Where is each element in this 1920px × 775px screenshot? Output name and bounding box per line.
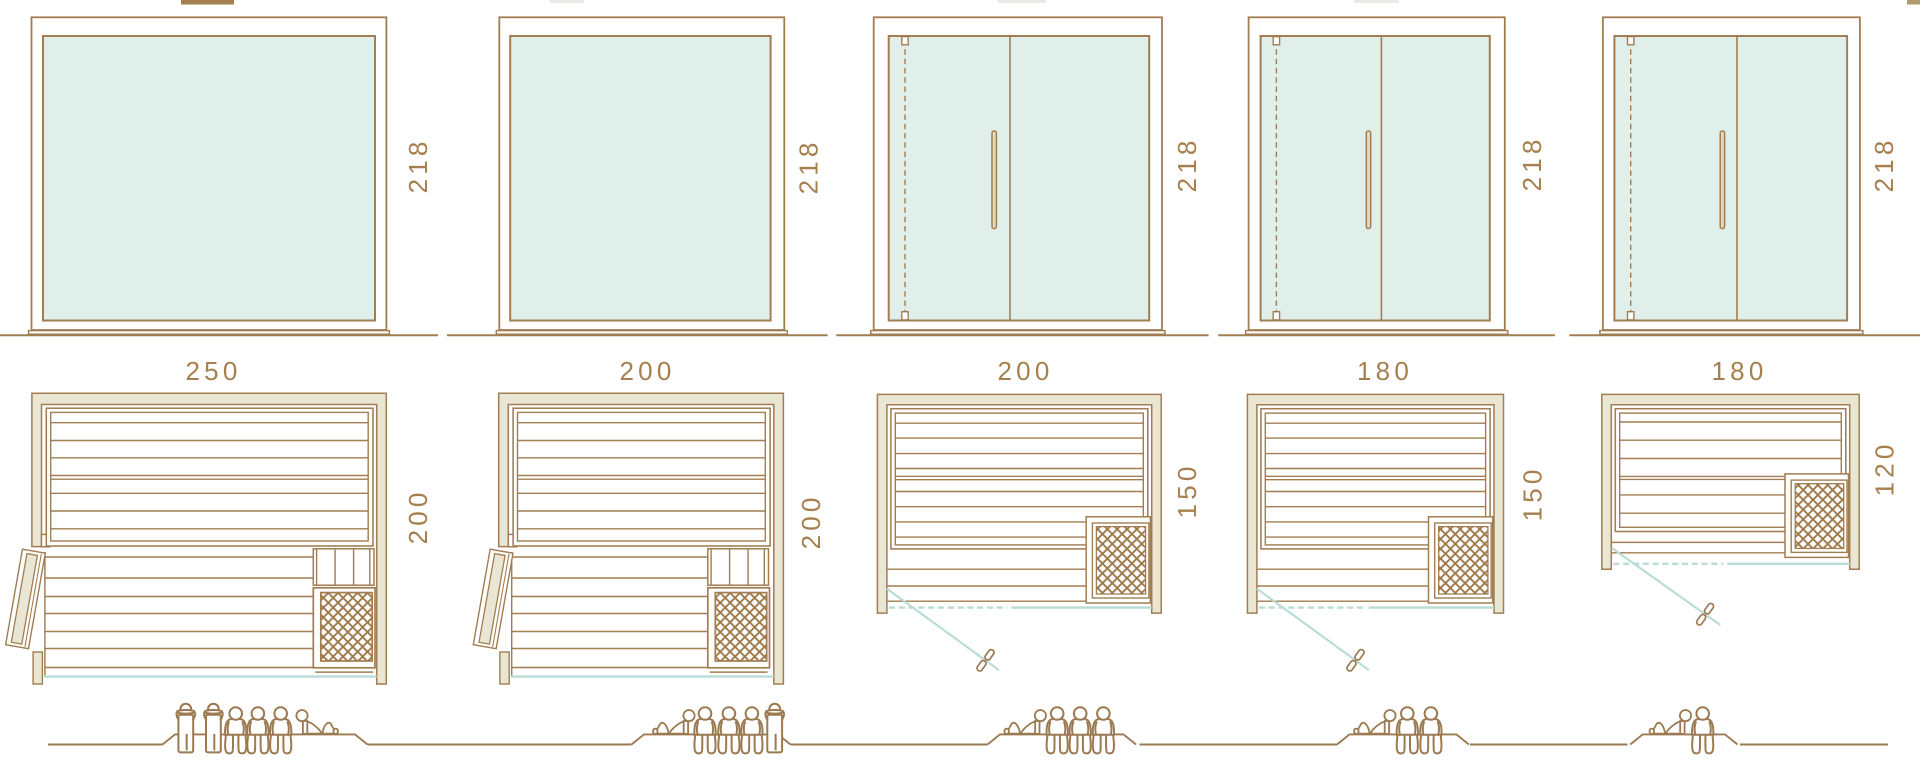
- svg-text:218: 218: [1517, 135, 1547, 191]
- svg-text:218: 218: [794, 138, 824, 194]
- svg-text:180: 180: [1712, 356, 1768, 386]
- svg-text:218: 218: [1172, 136, 1202, 192]
- svg-text:250: 250: [186, 356, 242, 386]
- svg-text:218: 218: [403, 137, 433, 193]
- svg-text:120: 120: [1870, 440, 1900, 496]
- svg-text:150: 150: [1518, 465, 1548, 521]
- svg-text:200: 200: [620, 356, 676, 386]
- svg-text:150: 150: [1172, 462, 1202, 518]
- svg-text:200: 200: [403, 488, 433, 544]
- svg-text:200: 200: [998, 356, 1054, 386]
- svg-text:200: 200: [796, 493, 826, 549]
- svg-text:180: 180: [1357, 356, 1413, 386]
- svg-text:218: 218: [1869, 136, 1899, 192]
